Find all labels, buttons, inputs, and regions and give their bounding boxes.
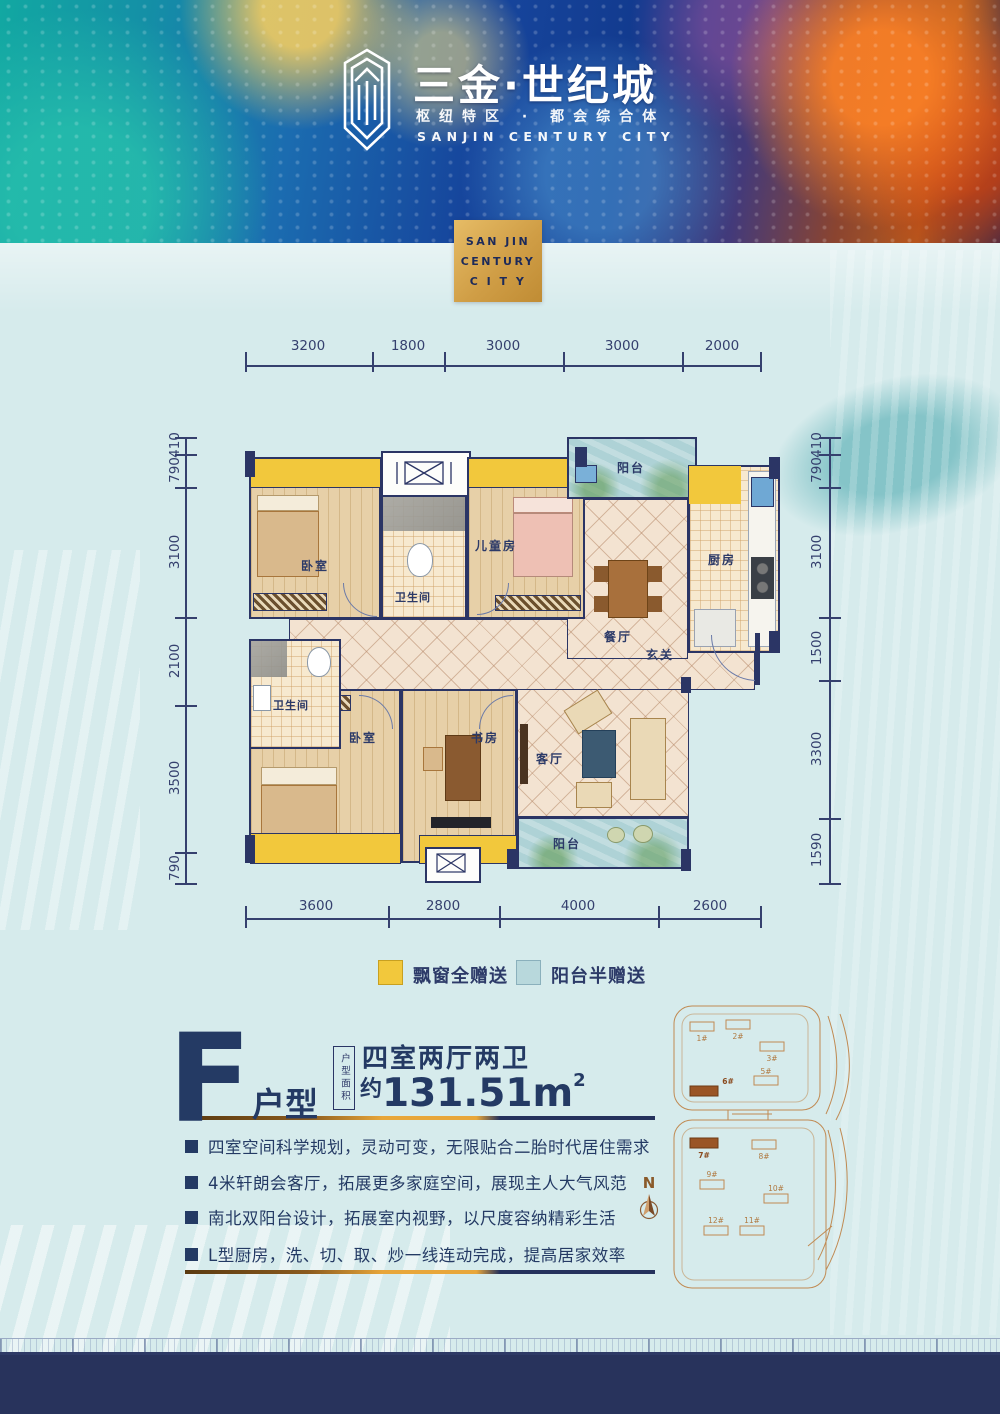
unit-type-label: 户型 [252, 1078, 318, 1126]
badge-line: SAN JIN [466, 235, 530, 248]
dimension-top: 3200 1800 3000 3000 2000 [245, 338, 762, 370]
area-number: 131.51m [382, 1071, 573, 1116]
dim-label: 790 [167, 457, 183, 483]
badge-line: C I T Y [470, 275, 527, 288]
room-label: 卧室 [301, 557, 329, 574]
bed-pillows-furniture [257, 495, 319, 511]
building-label: 7# [698, 1151, 710, 1160]
kitchen: 厨房 [688, 465, 780, 653]
door-arc [479, 695, 513, 729]
sink-fixture [751, 477, 774, 507]
living-room: 客厅 [517, 689, 689, 817]
dim-label: 3000 [605, 338, 639, 354]
building-label: 9# [706, 1170, 717, 1179]
area-superscript: 2 [573, 1070, 586, 1091]
feature-text: 南北双阳台设计，拓展室内视野，以尺度容纳精彩生活 [208, 1205, 616, 1229]
bed-pillows-furniture [261, 767, 337, 785]
chair-furniture [648, 566, 662, 582]
wardrobe-furniture [495, 595, 581, 611]
watercolor-wash [0, 550, 140, 930]
bed-pillows-furniture [513, 497, 573, 513]
unit-letter: F [168, 1018, 251, 1140]
elevator-shaft [381, 451, 471, 499]
wall-pillar [681, 677, 691, 693]
dim-label: 1590 [809, 833, 825, 867]
dim-label: 2100 [167, 644, 183, 678]
north-label: N [640, 1174, 658, 1192]
site-plan: 1# 2# 3# 5# 6# 7# 8# 9# 10# 11# 12# [668, 1000, 863, 1299]
room-label: 玄关 [646, 646, 674, 663]
chair-furniture [648, 596, 662, 612]
armchair-furniture [564, 690, 613, 735]
brand-badge: SAN JIN CENTURY C I T Y [454, 220, 542, 302]
elevator-shaft [425, 847, 481, 883]
dining-room: 餐厅 [567, 499, 688, 659]
bullet-square-icon [185, 1248, 198, 1261]
dim-label: 2600 [693, 898, 727, 914]
room-label: 卫生间 [273, 697, 309, 713]
bay-window [250, 833, 401, 864]
dim-label: 410 [167, 432, 183, 458]
room-label: 阳台 [617, 459, 645, 476]
building-label: 1# [696, 1034, 707, 1043]
building-label: 10# [768, 1184, 784, 1193]
dim-label: 3000 [486, 338, 520, 354]
door-arc [359, 695, 393, 729]
dimension-left: 410 790 3100 2100 3500 790 [168, 437, 202, 885]
legend-balcony-label: 阳台半赠送 [551, 962, 646, 988]
room-label: 书房 [471, 729, 499, 746]
project-tagline: 枢纽特区 · 都会综合体 [416, 106, 665, 126]
project-title-english: SANJIN CENTURY CITY [417, 129, 675, 144]
feature-item: 四室空间科学规划，灵动可变，无限贴合二胎时代居住需求 [185, 1134, 650, 1158]
room-label: 客厅 [536, 750, 564, 767]
unit-area-box-label: 户型面积 [333, 1046, 355, 1110]
dim-label: 790 [167, 855, 183, 881]
coffee-table-furniture [582, 730, 616, 778]
room-label: 卧室 [349, 729, 377, 746]
legend-bay-swatch [378, 960, 403, 985]
sofa-furniture [630, 718, 666, 800]
dimension-bottom: 3600 2800 4000 2600 [245, 898, 762, 932]
project-title: 三金·世纪城 [413, 52, 657, 113]
bathroom-1: 卫生间 [381, 495, 467, 619]
building-label: 11# [744, 1216, 760, 1225]
dining-table-furniture [608, 560, 648, 618]
bay-window [250, 458, 381, 488]
bay-window [689, 466, 741, 504]
building-label: 12# [708, 1216, 724, 1225]
washbasin-fixture [253, 685, 271, 711]
brand-logo-icon [338, 48, 396, 156]
dim-label: 4000 [561, 898, 595, 914]
wall-pillar [575, 447, 587, 467]
wall-pillar [507, 849, 519, 869]
stone-decor [607, 827, 625, 843]
stove-fixture [751, 557, 774, 599]
room-label: 卫生间 [395, 589, 431, 605]
toilet-fixture [407, 543, 433, 577]
washing-machine-furniture [575, 465, 597, 483]
wall-pillar [245, 835, 255, 863]
chair-furniture [594, 566, 608, 582]
dimension-right: 410 790 3100 1500 3300 1590 [812, 437, 846, 885]
dim-label: 3500 [167, 761, 183, 795]
building-label: 6# [722, 1077, 734, 1086]
floor-plan: 玄关 餐厅 卧室 卫生间 [245, 437, 780, 885]
bedroom-1: 卧室 [249, 457, 381, 619]
dim-label: 1500 [809, 631, 825, 665]
feature-item: 南北双阳台设计，拓展室内视野，以尺度容纳精彩生活 [185, 1205, 616, 1229]
legend-bay-label: 飘窗全赠送 [413, 962, 508, 988]
wall-segment [755, 633, 760, 685]
bathroom-2: 卫生间 [249, 639, 341, 749]
dim-label: 2000 [705, 338, 739, 354]
balcony-bottom: 阳台 [517, 817, 689, 869]
building-label: 5# [760, 1067, 771, 1076]
wardrobe-furniture [253, 593, 327, 611]
compass-icon [636, 1192, 662, 1226]
dim-label: 410 [809, 432, 825, 458]
armchair-furniture [576, 782, 612, 808]
wall-pillar [681, 849, 691, 871]
shower-area [383, 497, 465, 531]
dim-label: 3200 [291, 338, 325, 354]
dim-label: 790 [809, 457, 825, 483]
room-label: 儿童房 [475, 537, 517, 554]
dim-label: 2800 [426, 898, 460, 914]
dim-label: 3100 [167, 535, 183, 569]
feature-text: L型厨房，洗、切、取、炒一线连动完成，提高居家效率 [208, 1242, 626, 1266]
footer-bar [0, 1355, 1000, 1414]
wall-pillar [769, 631, 780, 653]
shower-area [251, 641, 287, 677]
building-label: 2# [732, 1032, 743, 1041]
bed-furniture [513, 513, 573, 577]
dim-label: 1800 [391, 338, 425, 354]
legend-balcony-swatch [516, 960, 541, 985]
dim-label: 3600 [299, 898, 333, 914]
building-label: 8# [758, 1152, 769, 1161]
feature-text: 四室空间科学规划，灵动可变，无限贴合二胎时代居住需求 [208, 1134, 650, 1158]
bullet-square-icon [185, 1211, 198, 1224]
dim-label: 3300 [809, 732, 825, 766]
dim-label: 3100 [809, 535, 825, 569]
door-arc [343, 583, 377, 617]
study-room: 书房 [401, 689, 517, 863]
room-label: 厨房 [708, 551, 736, 568]
feature-text: 4米轩朗会客厅，拓展更多家庭空间，展现主人大气风范 [208, 1170, 627, 1194]
chair-furniture [423, 747, 443, 771]
piano-furniture [431, 817, 491, 828]
stone-decor [633, 825, 653, 843]
tv-cabinet-furniture [520, 724, 528, 784]
toilet-fixture [307, 647, 331, 677]
area-prefix: 约 [360, 1077, 382, 1102]
divider-rule [185, 1270, 655, 1274]
room-label: 餐厅 [604, 628, 632, 645]
feature-item: L型厨房，洗、切、取、炒一线连动完成，提高居家效率 [185, 1242, 626, 1266]
watercolor-wash [754, 348, 1000, 561]
feature-item: 4米轩朗会客厅，拓展更多家庭空间，展现主人大气风范 [185, 1170, 627, 1194]
wall-pillar [769, 457, 780, 479]
chair-furniture [594, 596, 608, 612]
bullet-square-icon [185, 1176, 198, 1189]
room-label: 阳台 [553, 835, 581, 852]
footer-ornament-strip [0, 1338, 1000, 1355]
building-label: 3# [766, 1054, 777, 1063]
poster: 三金·世纪城 枢纽特区 · 都会综合体 SANJIN CENTURY CITY … [0, 0, 1000, 1414]
unit-area-value: 约131.51m2 [360, 1070, 586, 1116]
badge-line: CENTURY [461, 255, 536, 268]
wall-pillar [245, 451, 255, 477]
